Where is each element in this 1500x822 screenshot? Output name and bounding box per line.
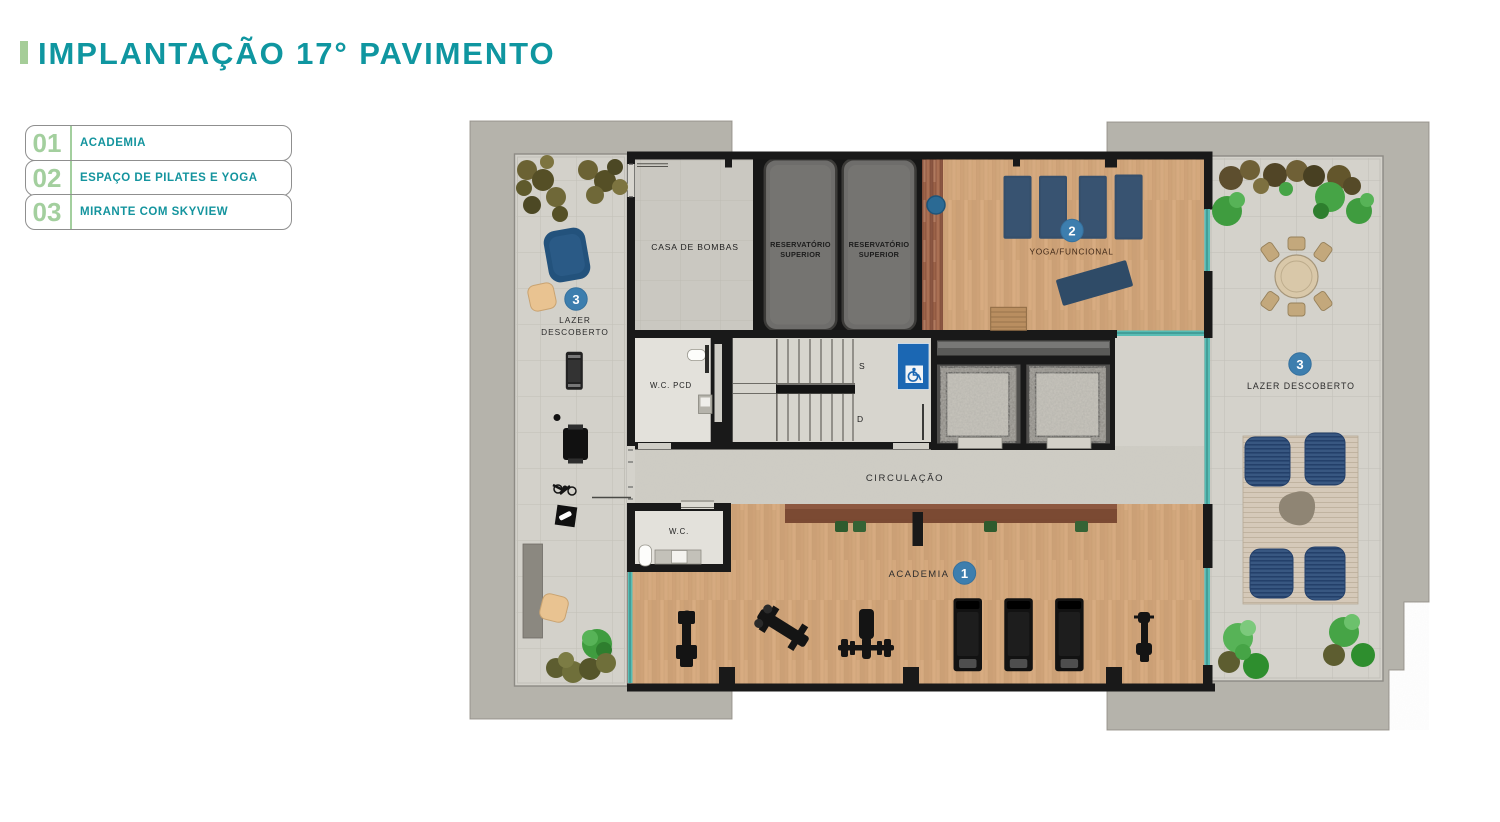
svg-text:3: 3	[572, 292, 579, 307]
svg-text:W.C.: W.C.	[669, 527, 689, 536]
svg-text:LAZER DESCOBERTO: LAZER DESCOBERTO	[1247, 381, 1355, 391]
svg-text:SUPERIOR: SUPERIOR	[780, 250, 821, 259]
svg-text:3: 3	[1296, 357, 1303, 372]
svg-text:1: 1	[961, 566, 968, 581]
svg-text:RESERVATÓRIO: RESERVATÓRIO	[849, 240, 910, 249]
svg-text:YOGA/FUNCIONAL: YOGA/FUNCIONAL	[1029, 247, 1113, 257]
svg-text:DESCOBERTO: DESCOBERTO	[541, 327, 609, 337]
svg-text:2: 2	[1068, 223, 1075, 238]
svg-text:RESERVATÓRIO: RESERVATÓRIO	[770, 240, 831, 249]
svg-text:S: S	[859, 361, 865, 371]
svg-text:D: D	[857, 414, 863, 424]
svg-text:ACADEMIA: ACADEMIA	[889, 569, 950, 580]
svg-text:CIRCULAÇÃO: CIRCULAÇÃO	[866, 473, 944, 484]
svg-text:W.C. PCD: W.C. PCD	[650, 381, 692, 390]
svg-text:LAZER: LAZER	[559, 315, 591, 325]
svg-text:CASA DE BOMBAS: CASA DE BOMBAS	[651, 242, 739, 252]
svg-text:SUPERIOR: SUPERIOR	[859, 250, 900, 259]
